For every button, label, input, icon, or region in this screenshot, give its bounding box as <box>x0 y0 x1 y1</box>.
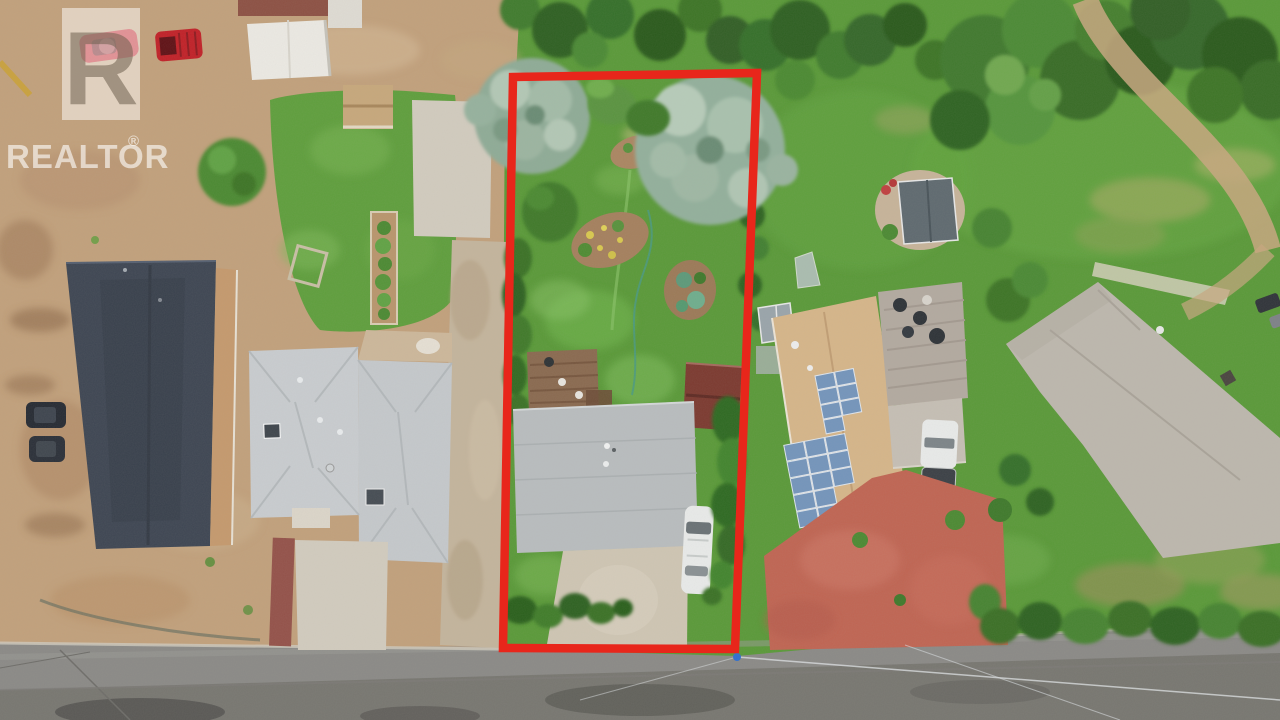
realtor-wordmark: REALTOR <box>6 138 169 175</box>
realtor-logo-letter: R <box>63 11 138 127</box>
aerial-photo-canvas: R REALTOR ® <box>0 0 1280 720</box>
registered-trademark-symbol: ® <box>128 133 139 150</box>
aerial-photo: R REALTOR ® <box>0 0 1280 720</box>
photo-grain-overlay <box>0 0 1280 720</box>
